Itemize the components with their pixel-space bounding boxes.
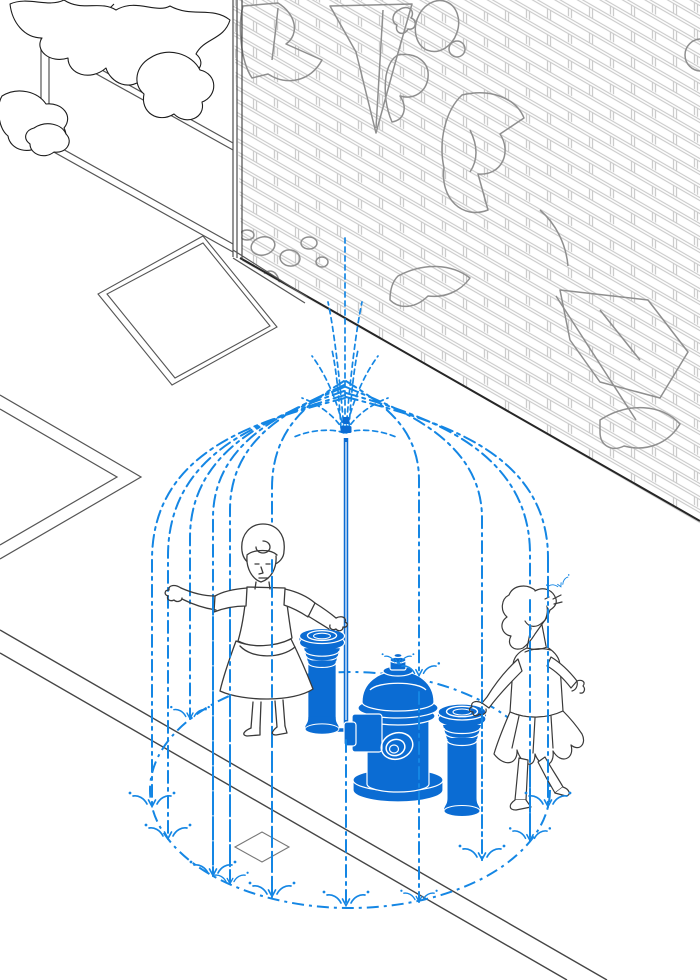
street-play-illustration: Isometric street illustration: fire hydr… — [0, 0, 700, 980]
tree-canopy — [0, 0, 230, 156]
sidewalk-joint — [0, 395, 141, 559]
fire-hydrant — [344, 654, 443, 802]
water-dome — [152, 381, 548, 897]
illustration-canvas: Isometric street illustration: fire hydr… — [0, 0, 700, 980]
brick-wall — [233, 0, 700, 530]
riser-pipe — [336, 417, 366, 730]
girl-figure — [469, 586, 584, 810]
bollard-right — [438, 704, 486, 817]
paver-diamond — [235, 832, 289, 862]
